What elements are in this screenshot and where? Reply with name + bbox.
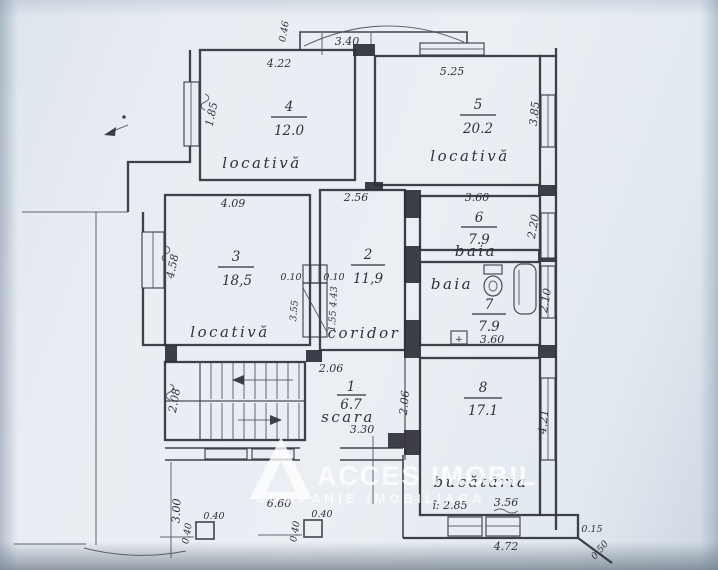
wall-chunk (404, 320, 421, 358)
toilet-bowl-inner (489, 281, 497, 291)
watermark-tagline: COMPANIE IMOBILIARA (256, 491, 486, 506)
dim-room4-top: 4.22 (266, 57, 292, 70)
room3-area: 18,5 (222, 273, 252, 289)
dim-room8-bottom: 3.56 (494, 496, 519, 509)
dim-porch-column: 0.40 (288, 520, 303, 543)
stairs-treads-lower (200, 403, 299, 439)
wall-chunk (538, 185, 556, 196)
stairs-arrow-down-head (270, 415, 282, 425)
room2-number: 2 (363, 247, 373, 263)
room4-name: locativă (222, 154, 301, 172)
dim-room7-threshold-plus: + (455, 334, 463, 345)
room3-number: 3 (232, 249, 241, 265)
dim-bump-width: 3.40 (335, 35, 360, 48)
dim-room3-top: 4.09 (220, 197, 246, 210)
wall-chunk (388, 433, 404, 448)
room6-name: baia (455, 242, 497, 260)
toilet-tank-icon (484, 265, 502, 274)
dim-stairs-width: 3.30 (350, 423, 375, 436)
watermark-brand: ACCES IMOBIL (317, 461, 538, 491)
wall-chunk (365, 182, 383, 190)
room5-number: 5 (474, 97, 483, 113)
room7-number: 7 (485, 297, 494, 313)
direction-arrow-dot (122, 115, 125, 118)
floor-plan-drawing: 3.40 0.46 4.22 1.85 4 12.0 locativă 5.25… (0, 0, 718, 570)
wall-left-outer (128, 50, 190, 345)
wall-chunk (306, 350, 322, 362)
dim-room3-left: 4.58 (163, 253, 181, 281)
wall-chunk (404, 430, 421, 455)
room5-area: 20.2 (462, 121, 493, 137)
room2-area: 11,9 (353, 271, 383, 287)
room7-name: baia (431, 275, 473, 293)
room8-number: 8 (479, 380, 488, 396)
wall-chunk (404, 246, 421, 283)
wall-chunk (165, 345, 177, 362)
wall-chunk (538, 345, 556, 358)
room1-number: 1 (347, 379, 356, 395)
dim-room8-right: 4.21 (536, 409, 551, 436)
porch-column (304, 520, 322, 537)
dim-stairs-left: 2.08 (166, 387, 183, 414)
dim-porch-column: 0.40 (180, 522, 195, 545)
dim-stairs-top: 2.06 (318, 362, 344, 375)
stairs-treads-upper (200, 363, 299, 399)
dim-shaft-offset-right: 0.10 (323, 272, 344, 283)
dim-porch-column: 0.40 (311, 509, 332, 520)
dim-room6-top: 3.60 (465, 191, 490, 204)
room4-area: 12.0 (274, 123, 304, 139)
squiggle-mark (494, 509, 518, 513)
room3-name: locativă (190, 323, 269, 341)
stairs-arrow-up-head (232, 375, 244, 385)
dim-shaft-height: 3.55 (288, 300, 301, 322)
dim-edge-right-step: 0.15 (581, 524, 602, 535)
room5-name: locativă (430, 147, 509, 165)
dim-bump-depth: 0.46 (277, 20, 292, 43)
dim-room5-top: 5.25 (440, 65, 465, 78)
dim-porch-left: 3.00 (169, 498, 183, 523)
window-stairs-band (205, 449, 247, 459)
room6-number: 6 (475, 210, 484, 226)
dim-porch-column: 0.40 (203, 511, 224, 522)
shaft-diagonal (303, 288, 327, 332)
direction-arrow-icon (104, 127, 116, 136)
wall-chunk (404, 190, 421, 218)
room8-area: 17.1 (468, 403, 498, 419)
dim-landing-right: 2.06 (397, 390, 412, 417)
shaft-door-lines (311, 265, 319, 283)
toilet-bowl-icon (484, 276, 502, 296)
dim-room7-bottom: 3.60 (480, 333, 505, 346)
dim-shaft-offset-left: 0.10 (280, 272, 301, 283)
watermark-logo (250, 437, 312, 499)
room2-name: coridor (328, 324, 401, 342)
room4-number: 4 (284, 99, 294, 115)
dim-room5-right: 3.85 (527, 101, 542, 127)
bathtub-icon (514, 264, 536, 314)
dim-room4-left: 1.85 (203, 101, 221, 128)
scanned-floor-plan-photo: 3.40 0.46 4.22 1.85 4 12.0 locativă 5.25… (0, 0, 718, 570)
dim-room2-top: 2.56 (343, 191, 369, 204)
dim-room8-bottom-outer: 4.72 (493, 540, 519, 553)
porch-column (196, 522, 214, 539)
